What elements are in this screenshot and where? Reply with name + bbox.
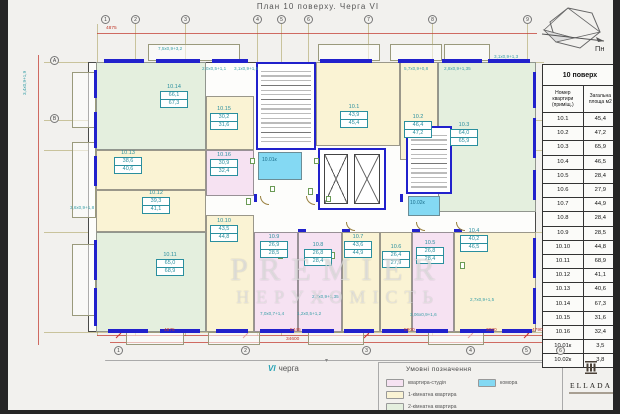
- legend-swatch-storage: [478, 379, 496, 387]
- room-label: 10.826,828,4: [304, 242, 332, 266]
- staircase-1: [256, 62, 316, 150]
- table-row: 10.627,9: [543, 183, 618, 197]
- storage-label: 10.01к: [262, 157, 277, 163]
- axis-bubble: 9: [523, 15, 532, 24]
- room-label: 10.626,427,9: [382, 244, 410, 268]
- legend-label-storage: комора: [500, 380, 517, 386]
- legend-title: Умовні позначення: [406, 366, 472, 373]
- axis-bubble: 8: [428, 15, 437, 24]
- axis-bubble: 5: [277, 15, 286, 24]
- table-row: 10.928,5: [543, 226, 618, 240]
- axis-bubble: 6: [304, 15, 313, 24]
- floorplan-sheet: { "title": "План 10 поверху. Черга VI", …: [0, 0, 620, 414]
- dim-bottom: 5900: [404, 328, 415, 333]
- table-row: 10.1467,3: [543, 297, 618, 311]
- balcony: [72, 72, 96, 128]
- room-10-11: [96, 232, 206, 332]
- table-row: 10.1168,9: [543, 254, 618, 268]
- axis-bubble: 6: [556, 346, 565, 355]
- table-row: 10.446,5: [543, 155, 618, 169]
- axis-bubble: 2: [241, 346, 250, 355]
- page-title: План 10 поверху. Черга VI: [158, 2, 478, 11]
- table-row: 10.1531,6: [543, 311, 618, 325]
- dim-top: 4875: [106, 26, 117, 31]
- dim-total: 34600: [286, 337, 299, 342]
- axis-bubble: 7: [364, 15, 373, 24]
- table-row: 10.1632,4: [543, 325, 618, 339]
- table-row: 10.1044,8: [543, 240, 618, 254]
- balcony: [428, 332, 484, 345]
- storage-label: 10.02к: [410, 200, 425, 206]
- balcony: [72, 244, 96, 316]
- table-row: 10.365,9: [543, 141, 618, 155]
- room-label: 10.526,828,4: [416, 240, 444, 264]
- table-row: 10.1340,6: [543, 283, 618, 297]
- balcony: [126, 332, 184, 345]
- legend-label-1room: 1-кімнатна квартира: [408, 392, 456, 398]
- table-row: 10.145,4: [543, 113, 618, 127]
- legend-label-studio: квартира-студія: [408, 380, 446, 386]
- room-label: 10.1466,167,3: [160, 84, 188, 108]
- axis-bubble: В: [50, 114, 59, 123]
- brace-notch: ▾: [325, 357, 328, 364]
- elevator-shaft: [354, 154, 380, 204]
- balcony: [308, 332, 364, 345]
- axis-bubble: 2: [131, 15, 140, 24]
- legend-swatch-studio: [386, 379, 404, 387]
- drawing-sheet: План 10 поверху. Черга VI Пн 4875 4875 5…: [8, 0, 613, 410]
- phase-label: VIчерга: [268, 364, 299, 373]
- room-label: 10.1165,068,9: [156, 252, 184, 276]
- dim-bottom: 4790: [532, 328, 543, 333]
- table-row: 10.744,9: [543, 198, 618, 212]
- room-10-14: [96, 62, 206, 150]
- axis-bubble: 4: [466, 346, 475, 355]
- dim-bottom: 3080: [486, 328, 497, 333]
- dim-bottom: 4875: [164, 328, 175, 333]
- room-label: 10.246,447,2: [404, 114, 432, 138]
- axis-bubble: 3: [181, 15, 190, 24]
- room-label: 10.743,644,9: [344, 234, 372, 258]
- room-label: 10.143,945,4: [340, 104, 368, 128]
- table-row: 10.528,4: [543, 169, 618, 183]
- room-label: 10.1239,341,1: [142, 190, 170, 214]
- axis-bubble: 5: [522, 346, 531, 355]
- room-label: 10.1530,231,6: [210, 106, 238, 130]
- north-arrow-icon: Пн: [538, 4, 614, 60]
- axis-bubble: 1: [114, 346, 123, 355]
- table-row: 10.247,2: [543, 127, 618, 141]
- room-label: 10.440,246,5: [460, 228, 488, 252]
- table-title: 10 поверх: [543, 65, 618, 86]
- axis-bubble: 1: [101, 15, 110, 24]
- room-label: 10.364,065,9: [450, 122, 478, 146]
- legend-swatch-1room: [386, 391, 404, 399]
- brand-tagline-bar: [569, 392, 613, 394]
- ellada-logo: ELLADA: [566, 360, 616, 394]
- axis-bubble: 3: [362, 346, 371, 355]
- col-header-apartment: Номер квартири (приміщ.): [543, 86, 584, 113]
- room-label: 10.1338,640,6: [114, 150, 142, 174]
- room-label: 10.926,928,5: [260, 234, 288, 258]
- room-label: 10.1630,932,4: [210, 152, 238, 176]
- table-row: 10.828,4: [543, 212, 618, 226]
- storage-10-02: [408, 196, 440, 216]
- north-label: Пн: [595, 44, 605, 53]
- axis-bubble: 4: [253, 15, 262, 24]
- column-icon: [583, 360, 599, 375]
- dim-bottom: 5445: [290, 328, 301, 333]
- table-row: 10.01к3,5: [543, 340, 618, 354]
- axis-bubble: А: [50, 56, 59, 65]
- balcony: [208, 332, 260, 345]
- room-10-13: [96, 150, 206, 190]
- table-row: 10.1241,1: [543, 269, 618, 283]
- apartment-area-table: 10 поверх Номер квартири (приміщ.) Загал…: [542, 64, 618, 368]
- brand-name: ELLADA: [566, 381, 616, 390]
- room-label: 10.1043,544,8: [210, 218, 238, 242]
